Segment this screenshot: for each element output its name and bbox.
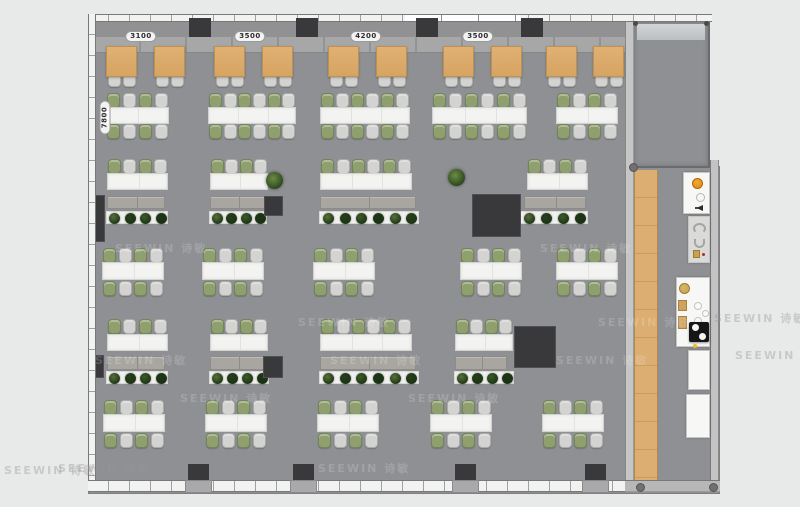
chair bbox=[361, 281, 374, 296]
storage-cabinet bbox=[320, 196, 416, 209]
plant bbox=[125, 373, 136, 384]
chair bbox=[123, 159, 136, 174]
dimension-label-left: 7800 bbox=[100, 101, 111, 135]
chair bbox=[461, 281, 474, 296]
column bbox=[293, 464, 314, 481]
cabinet-seam bbox=[369, 197, 370, 208]
chair bbox=[604, 93, 617, 108]
chair bbox=[314, 248, 327, 263]
chair bbox=[365, 433, 378, 448]
column-base bbox=[582, 480, 609, 493]
desk-seam bbox=[574, 415, 575, 431]
chair bbox=[477, 248, 490, 263]
plant bbox=[472, 373, 483, 384]
training-table bbox=[376, 46, 407, 77]
chair bbox=[237, 400, 250, 415]
desk-seam bbox=[240, 174, 241, 189]
beverage-station bbox=[683, 172, 710, 214]
training-table bbox=[214, 46, 245, 77]
chair bbox=[321, 159, 334, 174]
chair bbox=[470, 319, 483, 334]
chair bbox=[225, 319, 238, 334]
column bbox=[416, 18, 438, 37]
desk-seam bbox=[462, 415, 463, 431]
jar-lid bbox=[679, 283, 690, 294]
desk bbox=[430, 414, 492, 432]
chair bbox=[447, 400, 460, 415]
column-base bbox=[452, 480, 479, 493]
chair bbox=[240, 319, 253, 334]
planter-box bbox=[209, 371, 269, 384]
plant bbox=[212, 213, 223, 224]
chair bbox=[345, 248, 358, 263]
plant bbox=[502, 373, 513, 384]
chair bbox=[349, 433, 362, 448]
desk-seam bbox=[382, 174, 383, 189]
plant bbox=[558, 213, 569, 224]
counter-unit bbox=[688, 350, 710, 390]
desk bbox=[105, 107, 169, 124]
chair bbox=[590, 433, 603, 448]
desk bbox=[103, 414, 165, 432]
meeting-room-sideboard bbox=[637, 24, 705, 41]
chair bbox=[574, 400, 587, 415]
desk bbox=[210, 334, 268, 351]
cutting-board bbox=[678, 300, 687, 311]
chair bbox=[345, 281, 358, 296]
column-block bbox=[472, 194, 521, 237]
wall-junction bbox=[709, 483, 718, 492]
storage-cabinet bbox=[524, 196, 586, 209]
training-table bbox=[546, 46, 577, 77]
chair bbox=[574, 159, 587, 174]
chair bbox=[499, 319, 512, 334]
planter-box bbox=[454, 371, 514, 384]
chair bbox=[211, 159, 224, 174]
chair bbox=[481, 93, 494, 108]
chair bbox=[351, 93, 364, 108]
plant bbox=[241, 213, 252, 224]
chair bbox=[573, 124, 586, 139]
planter-box bbox=[209, 211, 267, 224]
column bbox=[189, 18, 211, 37]
watermark-text: SEEWIN 诗敏 bbox=[714, 310, 800, 324]
chair bbox=[573, 248, 586, 263]
chair bbox=[337, 319, 350, 334]
chair bbox=[250, 248, 263, 263]
storage-cabinet bbox=[107, 196, 165, 209]
chair bbox=[588, 281, 601, 296]
chair bbox=[465, 93, 478, 108]
watermark-text: SEEWIN 诗敏 bbox=[735, 347, 800, 361]
chair bbox=[449, 124, 462, 139]
plant bbox=[156, 213, 167, 224]
chair bbox=[237, 433, 250, 448]
planter-box bbox=[520, 211, 588, 224]
chair bbox=[250, 281, 263, 296]
chair bbox=[219, 248, 232, 263]
chair bbox=[209, 124, 222, 139]
chair bbox=[351, 124, 364, 139]
counter-unit bbox=[686, 394, 710, 438]
desk-seam bbox=[559, 174, 560, 189]
chair bbox=[108, 159, 121, 174]
chair bbox=[588, 248, 601, 263]
desk bbox=[542, 414, 604, 432]
desk bbox=[460, 262, 522, 280]
storage-cabinet bbox=[210, 196, 266, 209]
chair bbox=[396, 93, 409, 108]
plant bbox=[340, 373, 351, 384]
training-table bbox=[262, 46, 293, 77]
chair bbox=[497, 93, 510, 108]
desk-seam bbox=[134, 263, 135, 279]
chair bbox=[282, 93, 295, 108]
storage-cabinet bbox=[455, 356, 507, 370]
chair bbox=[588, 93, 601, 108]
chair bbox=[104, 400, 117, 415]
column bbox=[521, 18, 543, 37]
plant bbox=[340, 213, 351, 224]
chair bbox=[234, 248, 247, 263]
plant bbox=[541, 213, 552, 224]
sanitary-unit bbox=[688, 216, 710, 263]
plant bbox=[457, 373, 468, 384]
dimension-label: 3500 bbox=[462, 31, 493, 42]
chair bbox=[383, 319, 396, 334]
background-mask bbox=[710, 14, 722, 166]
chair bbox=[222, 400, 235, 415]
column-base bbox=[185, 480, 212, 493]
wall-junction bbox=[704, 21, 709, 26]
chair bbox=[104, 433, 117, 448]
basin-glyph bbox=[693, 223, 706, 234]
desk-seam bbox=[139, 174, 140, 189]
chair bbox=[590, 400, 603, 415]
chair bbox=[557, 281, 570, 296]
plant bbox=[109, 373, 120, 384]
burner bbox=[692, 324, 699, 331]
wall-junction bbox=[636, 483, 645, 492]
plant bbox=[390, 213, 401, 224]
desk-seam bbox=[496, 108, 497, 123]
chair bbox=[462, 400, 475, 415]
desk bbox=[317, 414, 379, 432]
chair bbox=[557, 124, 570, 139]
plant bbox=[373, 213, 384, 224]
desk-seam bbox=[268, 108, 269, 123]
chair bbox=[240, 159, 253, 174]
chair bbox=[238, 93, 251, 108]
chair bbox=[477, 281, 490, 296]
corridor-divider-wall bbox=[625, 20, 634, 480]
chair bbox=[559, 159, 572, 174]
chair bbox=[225, 159, 238, 174]
chair bbox=[367, 159, 380, 174]
planter-box bbox=[319, 371, 419, 384]
chair bbox=[139, 93, 152, 108]
planter-box bbox=[106, 371, 168, 384]
training-table bbox=[154, 46, 185, 77]
chair bbox=[254, 159, 267, 174]
desk-seam bbox=[465, 108, 466, 123]
plant bbox=[227, 373, 238, 384]
storage-cabinet bbox=[210, 356, 266, 370]
chair bbox=[211, 319, 224, 334]
chair bbox=[108, 319, 121, 334]
desk-seam bbox=[135, 415, 136, 431]
cabinet-seam bbox=[137, 357, 138, 369]
chair bbox=[253, 93, 266, 108]
top-wall bbox=[88, 14, 712, 22]
chair bbox=[154, 319, 167, 334]
chair bbox=[462, 433, 475, 448]
chair bbox=[559, 433, 572, 448]
column bbox=[455, 464, 476, 481]
chair bbox=[381, 93, 394, 108]
wood-floor-strip bbox=[634, 170, 658, 480]
storage-cabinet bbox=[107, 356, 165, 370]
plant bbox=[356, 373, 367, 384]
desk-seam bbox=[237, 415, 238, 431]
planter-box bbox=[106, 211, 168, 224]
chair bbox=[219, 281, 232, 296]
chair bbox=[222, 433, 235, 448]
desk-seam bbox=[352, 335, 353, 350]
dimension-left-text: 7800 bbox=[101, 107, 109, 128]
plant bbox=[575, 213, 586, 224]
chair bbox=[282, 124, 295, 139]
chair bbox=[103, 248, 116, 263]
chair bbox=[234, 281, 247, 296]
plant bbox=[323, 213, 334, 224]
chair bbox=[139, 319, 152, 334]
chair bbox=[478, 400, 491, 415]
chair bbox=[150, 248, 163, 263]
desk bbox=[107, 173, 168, 190]
chair bbox=[209, 93, 222, 108]
chair bbox=[365, 400, 378, 415]
potted-plant bbox=[266, 172, 283, 189]
chair bbox=[492, 248, 505, 263]
cabinet-seam bbox=[369, 357, 370, 369]
chair bbox=[588, 124, 601, 139]
chair bbox=[508, 281, 521, 296]
chair bbox=[318, 400, 331, 415]
chair bbox=[123, 319, 136, 334]
desk-seam bbox=[382, 335, 383, 350]
chair bbox=[513, 124, 526, 139]
chair bbox=[330, 281, 343, 296]
chair bbox=[120, 400, 133, 415]
chair bbox=[318, 433, 331, 448]
desk-seam bbox=[139, 335, 140, 350]
meeting-room bbox=[632, 20, 710, 168]
plant bbox=[109, 213, 120, 224]
chair bbox=[253, 124, 266, 139]
chair bbox=[508, 248, 521, 263]
wall-junction bbox=[629, 163, 638, 172]
column bbox=[585, 464, 606, 481]
chair bbox=[573, 93, 586, 108]
desk bbox=[455, 334, 513, 351]
chair bbox=[574, 433, 587, 448]
chair bbox=[119, 248, 132, 263]
desk-seam bbox=[234, 263, 235, 279]
chair bbox=[431, 400, 444, 415]
chair bbox=[321, 319, 334, 334]
storage-cabinet bbox=[320, 356, 416, 370]
chair bbox=[330, 248, 343, 263]
left-wall bbox=[88, 14, 96, 492]
desk bbox=[208, 107, 296, 124]
plant bbox=[373, 373, 384, 384]
column bbox=[188, 464, 209, 481]
training-table bbox=[593, 46, 624, 77]
chair bbox=[349, 400, 362, 415]
sink-bowl bbox=[702, 310, 709, 317]
desk bbox=[102, 262, 164, 280]
plant bbox=[406, 213, 417, 224]
desk bbox=[313, 262, 375, 280]
chair bbox=[203, 281, 216, 296]
plant bbox=[242, 373, 253, 384]
plant bbox=[323, 373, 334, 384]
cabinet-seam bbox=[137, 197, 138, 208]
plant bbox=[356, 213, 367, 224]
dispenser-knob bbox=[692, 178, 703, 189]
cabinet-seam bbox=[556, 197, 557, 208]
plant bbox=[524, 213, 535, 224]
chair bbox=[151, 433, 164, 448]
chair bbox=[253, 400, 266, 415]
desk bbox=[320, 173, 412, 190]
chair bbox=[155, 93, 168, 108]
chair bbox=[478, 433, 491, 448]
chair bbox=[150, 281, 163, 296]
desk-seam bbox=[588, 263, 589, 279]
plant bbox=[125, 213, 136, 224]
chair bbox=[336, 124, 349, 139]
plant bbox=[140, 213, 151, 224]
chair bbox=[334, 433, 347, 448]
chair bbox=[206, 433, 219, 448]
chair bbox=[151, 400, 164, 415]
desk-seam bbox=[351, 108, 352, 123]
chair bbox=[268, 124, 281, 139]
chair bbox=[139, 159, 152, 174]
desk-seam bbox=[588, 108, 589, 123]
desk bbox=[320, 334, 412, 351]
cabinet-seam bbox=[239, 357, 240, 369]
plant bbox=[212, 373, 223, 384]
chair bbox=[154, 159, 167, 174]
desk bbox=[202, 262, 264, 280]
column-block bbox=[264, 196, 283, 216]
chair bbox=[123, 93, 136, 108]
potted-plant bbox=[448, 169, 465, 186]
column-block bbox=[514, 326, 556, 368]
desk-seam bbox=[138, 108, 139, 123]
training-table bbox=[106, 46, 137, 77]
chair bbox=[383, 159, 396, 174]
chair bbox=[513, 93, 526, 108]
office-floor-plan: 7800 SEEWIN 诗敏SEEWIN 诗敏SEEWIN 诗敏SEEWIN 诗… bbox=[0, 0, 800, 507]
chair bbox=[433, 124, 446, 139]
chair bbox=[321, 93, 334, 108]
chair bbox=[134, 248, 147, 263]
chair bbox=[573, 281, 586, 296]
dimension-label: 3500 bbox=[234, 31, 265, 42]
chair bbox=[361, 248, 374, 263]
chair bbox=[336, 93, 349, 108]
chair bbox=[367, 319, 380, 334]
desk bbox=[527, 173, 588, 190]
wall-junction bbox=[633, 21, 638, 26]
desk bbox=[556, 262, 618, 280]
desk-seam bbox=[345, 263, 346, 279]
plant bbox=[156, 373, 167, 384]
bottom-wall-window bbox=[88, 480, 625, 492]
chair bbox=[396, 124, 409, 139]
desk-seam bbox=[240, 335, 241, 350]
column bbox=[296, 18, 318, 37]
desk-seam bbox=[238, 108, 239, 123]
planter-box bbox=[319, 211, 419, 224]
kitchen-cooktop-unit bbox=[676, 277, 710, 347]
chair bbox=[481, 124, 494, 139]
chair bbox=[134, 281, 147, 296]
corridor-right-wall bbox=[710, 160, 719, 492]
burner bbox=[699, 333, 706, 340]
training-table bbox=[328, 46, 359, 77]
chair bbox=[449, 93, 462, 108]
desk bbox=[320, 107, 410, 124]
desk bbox=[210, 173, 268, 190]
chair bbox=[103, 281, 116, 296]
chair bbox=[398, 319, 411, 334]
knob-dot bbox=[693, 344, 697, 348]
dimension-label: 3100 bbox=[125, 31, 156, 42]
chair bbox=[604, 124, 617, 139]
chair bbox=[203, 248, 216, 263]
plant bbox=[406, 373, 417, 384]
chair bbox=[123, 124, 136, 139]
chair bbox=[398, 159, 411, 174]
chair bbox=[206, 400, 219, 415]
cutting-board bbox=[678, 316, 687, 329]
plant bbox=[140, 373, 151, 384]
column-base bbox=[290, 480, 317, 493]
desk-seam bbox=[349, 415, 350, 431]
chair bbox=[314, 281, 327, 296]
chair bbox=[155, 124, 168, 139]
chair bbox=[381, 124, 394, 139]
chair bbox=[557, 248, 570, 263]
cabinet-seam bbox=[239, 197, 240, 208]
chair bbox=[559, 400, 572, 415]
plant bbox=[226, 213, 237, 224]
chair bbox=[528, 159, 541, 174]
chair bbox=[366, 93, 379, 108]
desk bbox=[107, 334, 168, 351]
chair bbox=[543, 400, 556, 415]
column-block bbox=[263, 356, 283, 378]
chair bbox=[119, 281, 132, 296]
chair bbox=[456, 319, 469, 334]
chair bbox=[352, 319, 365, 334]
chair bbox=[604, 248, 617, 263]
